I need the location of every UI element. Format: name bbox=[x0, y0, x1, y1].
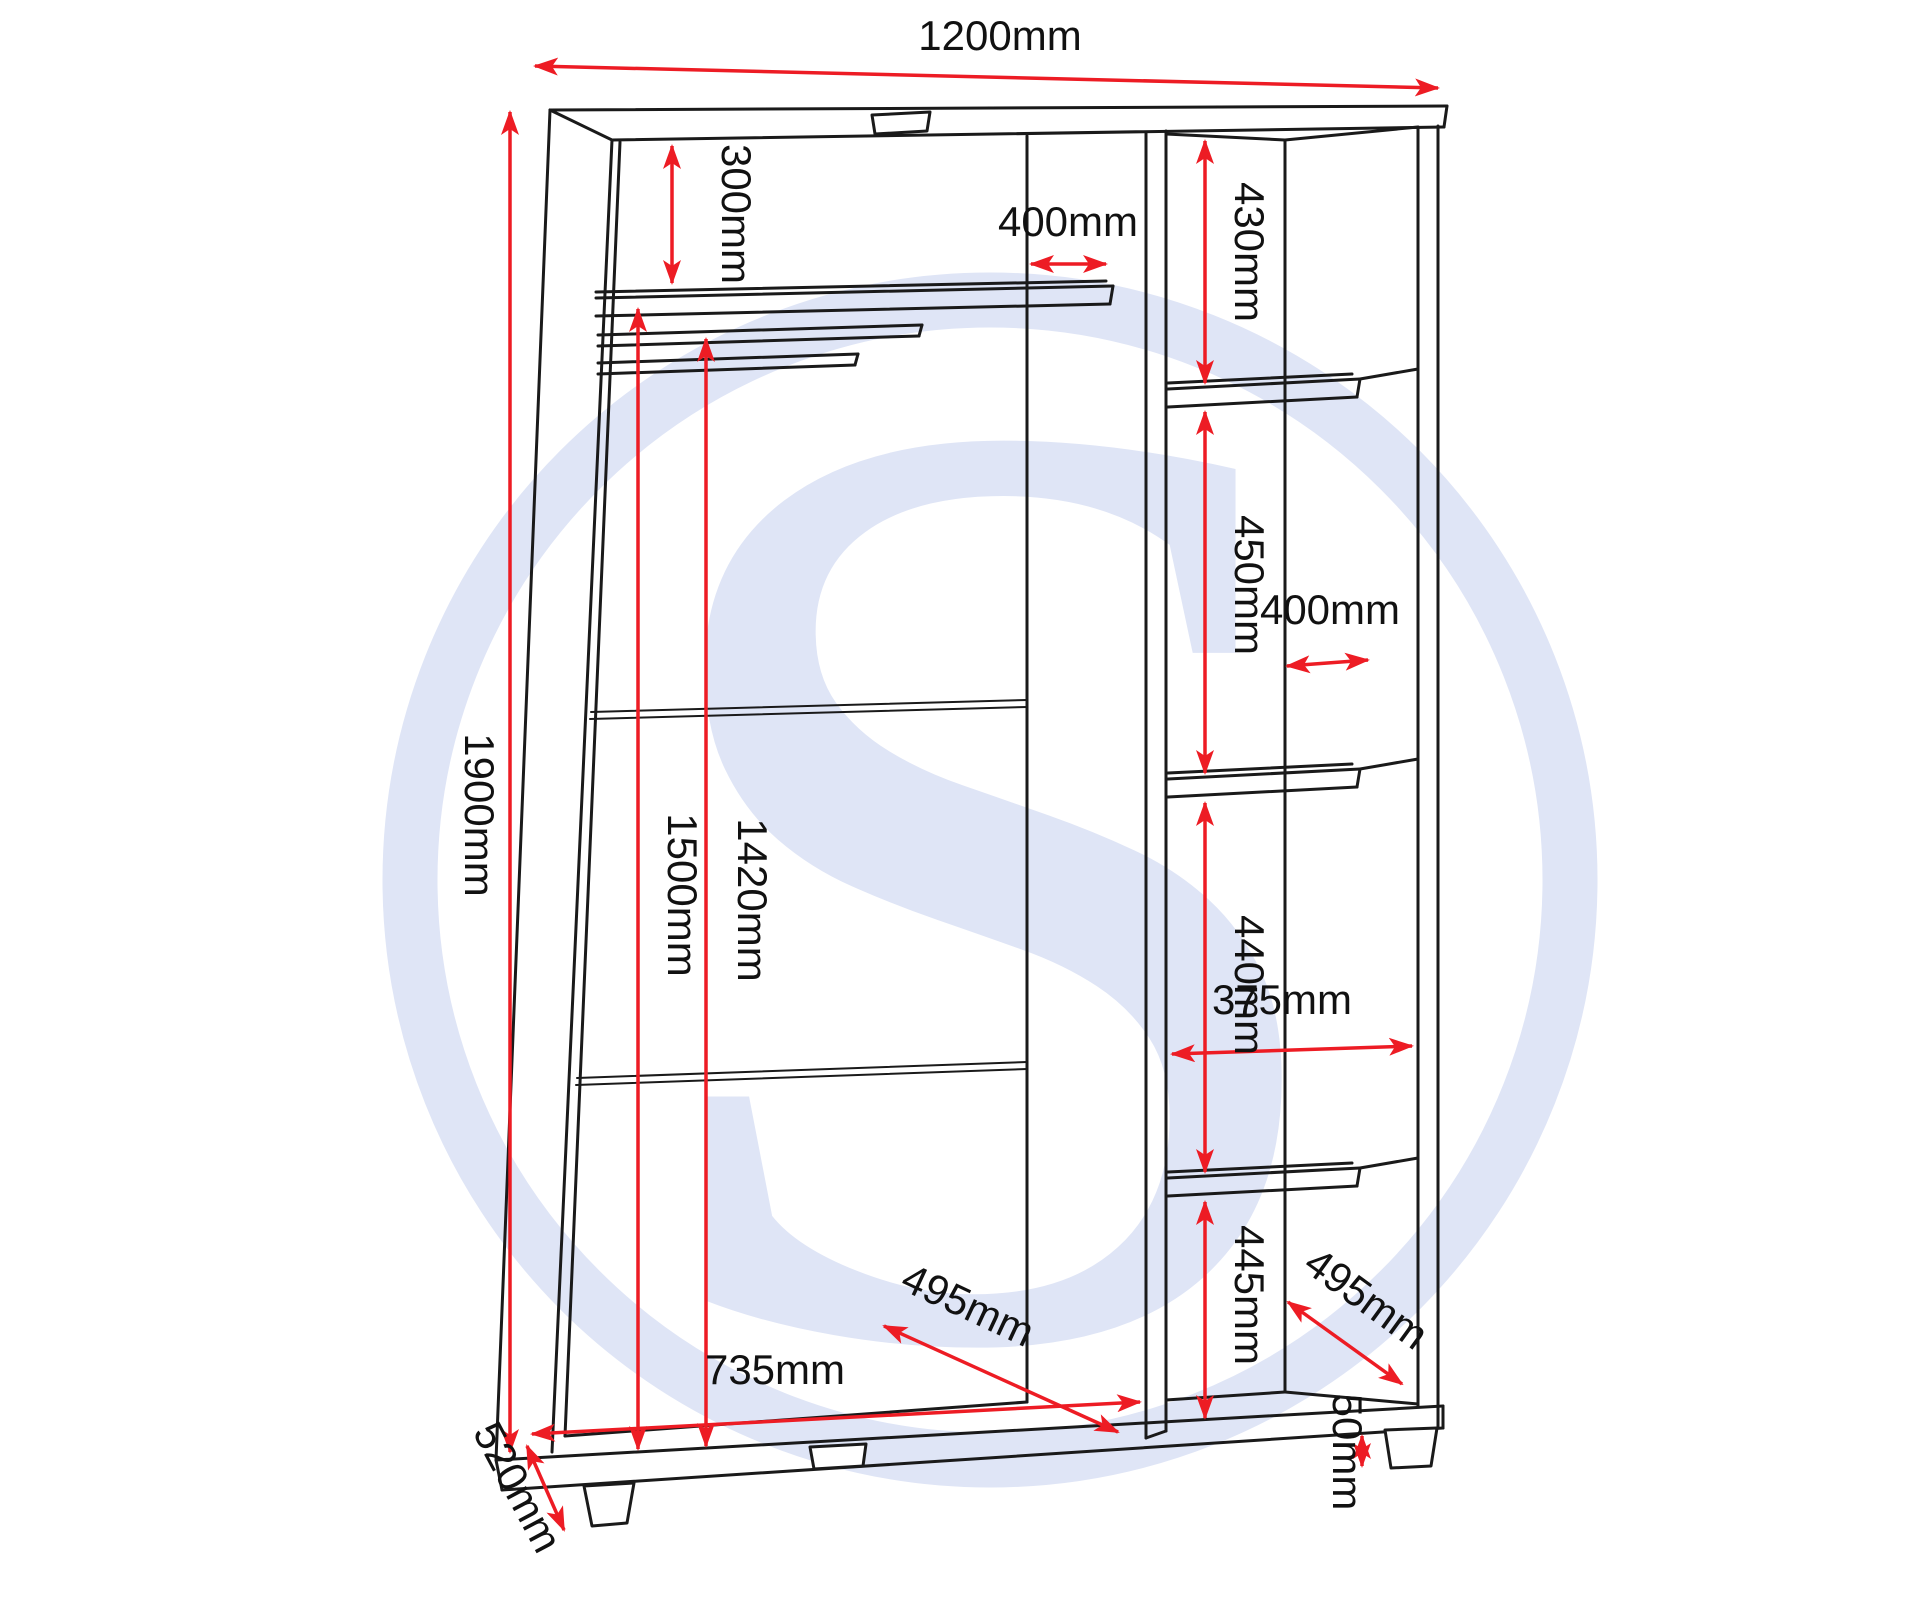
label-top-shelf-gap: 300mm bbox=[713, 144, 760, 284]
right-foot bbox=[1385, 1428, 1437, 1468]
left-foot bbox=[584, 1483, 634, 1526]
wardrobe-diagram-svg: S bbox=[0, 0, 1920, 1604]
label-right-bottom-section: 445mm bbox=[1226, 1225, 1273, 1365]
label-main-shelf-depth: 400mm bbox=[998, 198, 1138, 245]
label-width-top: 1200mm bbox=[918, 12, 1081, 59]
watermark-logo: S bbox=[410, 133, 1570, 1604]
label-hanging-drop-short: 1420mm bbox=[729, 818, 776, 981]
label-right-shelf-width: 375mm bbox=[1212, 976, 1352, 1023]
label-right-top-section: 430mm bbox=[1226, 182, 1273, 322]
label-foot-height: 50mm bbox=[1324, 1394, 1371, 1511]
top-panel-bracket-notch bbox=[872, 112, 930, 134]
label-main-interior-width: 735mm bbox=[705, 1346, 845, 1393]
label-height-left: 1900mm bbox=[456, 733, 503, 896]
base-bracket-notch bbox=[810, 1444, 866, 1469]
arrow-width-top bbox=[535, 66, 1438, 88]
dimension-diagram: S bbox=[0, 0, 1920, 1604]
label-right-shelf-depth: 400mm bbox=[1260, 586, 1400, 633]
label-hanging-drop-long: 1500mm bbox=[659, 813, 706, 976]
label-right-second-section: 450mm bbox=[1226, 515, 1273, 655]
